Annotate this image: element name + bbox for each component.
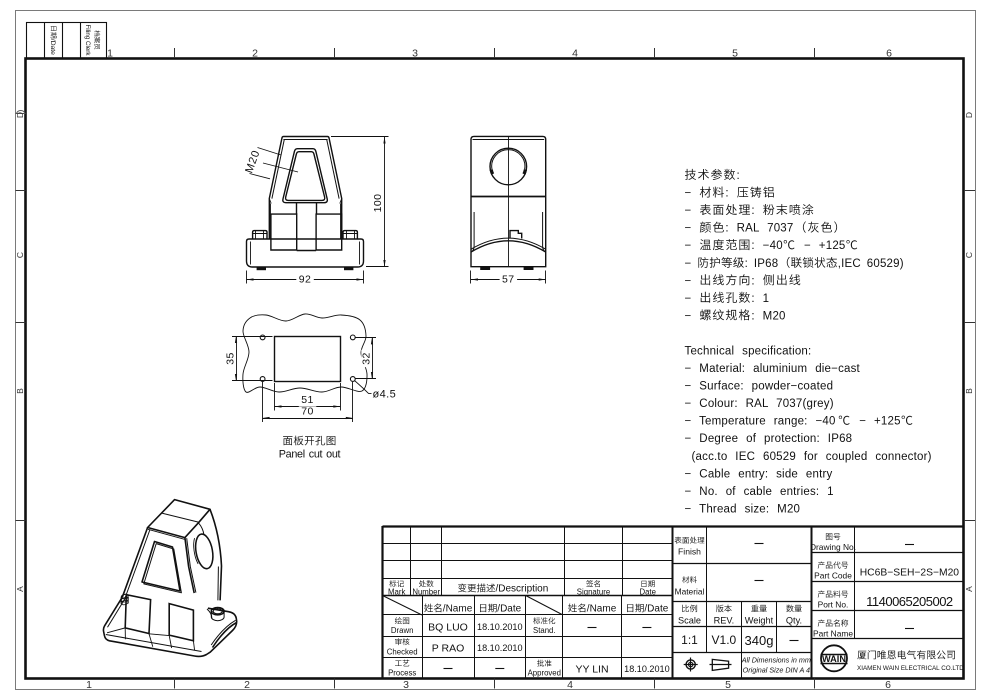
svg-text:BQ LUO: BQ LUO	[428, 622, 468, 634]
svg-text:−: −	[685, 188, 692, 200]
svg-text:(acc.to IEC 60529 for coupled: (acc.to IEC 60529 for coupled connector)	[692, 451, 932, 463]
svg-text:: −40: : −40	[751, 240, 782, 252]
svg-text:Filing Clerk: Filing Clerk	[84, 25, 91, 57]
svg-text::: :	[737, 170, 740, 182]
svg-text:V1.0: V1.0	[712, 633, 737, 647]
svg-text:6: 6	[886, 48, 892, 60]
svg-text:WAIN: WAIN	[822, 654, 846, 664]
svg-text:4: 4	[572, 48, 578, 60]
svg-text:5: 5	[732, 48, 738, 60]
svg-text:18.10.2010: 18.10.2010	[624, 664, 670, 674]
svg-text:Original Size DIN A 4: Original Size DIN A 4	[743, 666, 810, 675]
svg-text:51: 51	[301, 394, 313, 406]
svg-text:1140065205002: 1140065205002	[866, 594, 953, 609]
svg-text:− Material: aluminium die−cast: − Material: aluminium die−cast	[685, 363, 861, 375]
svg-text:92: 92	[299, 274, 311, 286]
svg-text:1: 1	[86, 679, 92, 691]
svg-text:Drawing No.: Drawing No.	[810, 542, 856, 552]
svg-text:− No. of cable entries: 1: − No. of cable entries: 1	[685, 486, 834, 498]
svg-text:70: 70	[301, 406, 313, 418]
svg-text:: IP68: : IP68	[745, 258, 779, 270]
svg-text:: 1: : 1	[751, 293, 769, 305]
svg-text:/Name: /Name	[587, 604, 617, 615]
svg-text:35: 35	[225, 352, 237, 364]
svg-text:3: 3	[403, 679, 409, 691]
svg-text:/Description: /Description	[496, 584, 549, 595]
svg-text:/Date: /Date	[497, 604, 521, 615]
svg-text:1:1: 1:1	[681, 633, 698, 647]
svg-text:Stand.: Stand.	[533, 626, 556, 635]
svg-text:18.10.2010: 18.10.2010	[477, 622, 523, 632]
svg-text:Mark: Mark	[388, 588, 405, 597]
svg-text:57: 57	[502, 274, 514, 286]
svg-text:− Thread size: M20: − Thread size: M20	[685, 504, 801, 516]
svg-text:P RAO: P RAO	[432, 643, 464, 655]
svg-text:− Degree of protection: IP68: − Degree of protection: IP68	[685, 433, 853, 445]
svg-text:3: 3	[412, 48, 418, 60]
svg-text:REV.: REV.	[714, 616, 735, 626]
svg-text:32: 32	[361, 352, 373, 364]
svg-text:Approved: Approved	[528, 669, 561, 678]
svg-text:B: B	[964, 388, 974, 394]
svg-text::: :	[751, 275, 754, 287]
svg-text:Checked: Checked	[387, 648, 418, 657]
svg-text:D: D	[964, 112, 974, 118]
svg-text:ø4.5: ø4.5	[373, 389, 397, 401]
svg-text:Signature: Signature	[577, 588, 610, 597]
svg-text:−: −	[685, 310, 692, 322]
svg-text:5: 5	[725, 679, 731, 691]
svg-text:− Colour: RAL 7037(grey): − Colour: RAL 7037(grey)	[685, 398, 834, 410]
svg-text:100: 100	[372, 194, 384, 213]
svg-text:Qty.: Qty.	[786, 616, 802, 626]
svg-text:Material: Material	[675, 587, 705, 597]
svg-text:18.10.2010: 18.10.2010	[477, 643, 523, 653]
svg-text::: :	[725, 188, 728, 200]
svg-text:−: −	[685, 205, 692, 217]
svg-text:340g: 340g	[745, 633, 774, 648]
svg-text:1: 1	[107, 48, 113, 60]
svg-text:: M20: : M20	[751, 310, 785, 322]
svg-text:−: −	[685, 275, 692, 287]
svg-text:− Temperature range: −40: − Temperature range: −40	[685, 416, 836, 428]
svg-text:Technical specification:: Technical specification:	[685, 346, 812, 358]
svg-text:Scale: Scale	[678, 616, 701, 626]
svg-text:Part Name: Part Name	[813, 629, 853, 639]
svg-text:: RAL 7037: : RAL 7037	[725, 223, 793, 235]
svg-text:Drawn: Drawn	[391, 626, 414, 635]
svg-text:Date: Date	[639, 588, 655, 597]
svg-text:B: B	[15, 388, 25, 394]
svg-text:/Name: /Name	[443, 604, 473, 615]
svg-text:D: D	[15, 112, 25, 118]
svg-text:−: −	[685, 240, 692, 252]
svg-text:−: −	[685, 293, 692, 305]
svg-text:Panel cut out: Panel cut out	[279, 449, 341, 461]
svg-text:− Cable entry: side entry: − Cable entry: side entry	[685, 468, 833, 480]
svg-text:C: C	[964, 252, 974, 258]
svg-text:− Surface: powder−coated: − Surface: powder−coated	[685, 381, 834, 393]
svg-text:XIAMEN WAIN ELECTRICAL CO.LTD: XIAMEN WAIN ELECTRICAL CO.LTD	[857, 665, 964, 672]
svg-text:A: A	[15, 586, 25, 592]
svg-text:C: C	[15, 252, 25, 258]
svg-text:−: −	[685, 258, 692, 270]
svg-text:Finish: Finish	[678, 547, 701, 557]
svg-text:Weight: Weight	[745, 616, 774, 626]
svg-text:YY LIN: YY LIN	[575, 664, 608, 676]
svg-text:/Date: /Date	[49, 39, 56, 55]
svg-text:− +125: − +125	[804, 240, 846, 252]
svg-text:Process: Process	[388, 669, 416, 678]
svg-text:,IEC 60529): ,IEC 60529)	[838, 258, 904, 270]
svg-text:HC6B−SEH−2S−M20: HC6B−SEH−2S−M20	[860, 568, 960, 579]
svg-text:6: 6	[885, 679, 891, 691]
svg-text:A: A	[964, 586, 974, 592]
svg-text:4: 4	[567, 679, 573, 691]
svg-text:−: −	[685, 223, 692, 235]
svg-text:Part Code: Part Code	[814, 571, 852, 581]
svg-text:− +125: − +125	[859, 416, 901, 428]
svg-text:2: 2	[244, 679, 250, 691]
svg-text:Number: Number	[412, 588, 440, 597]
svg-text::: :	[751, 205, 754, 217]
svg-text:/Date: /Date	[644, 604, 668, 615]
svg-text:2: 2	[252, 48, 258, 60]
svg-text:Port No.: Port No.	[818, 600, 849, 610]
svg-text:All Dimensions in mm: All Dimensions in mm	[741, 656, 811, 665]
